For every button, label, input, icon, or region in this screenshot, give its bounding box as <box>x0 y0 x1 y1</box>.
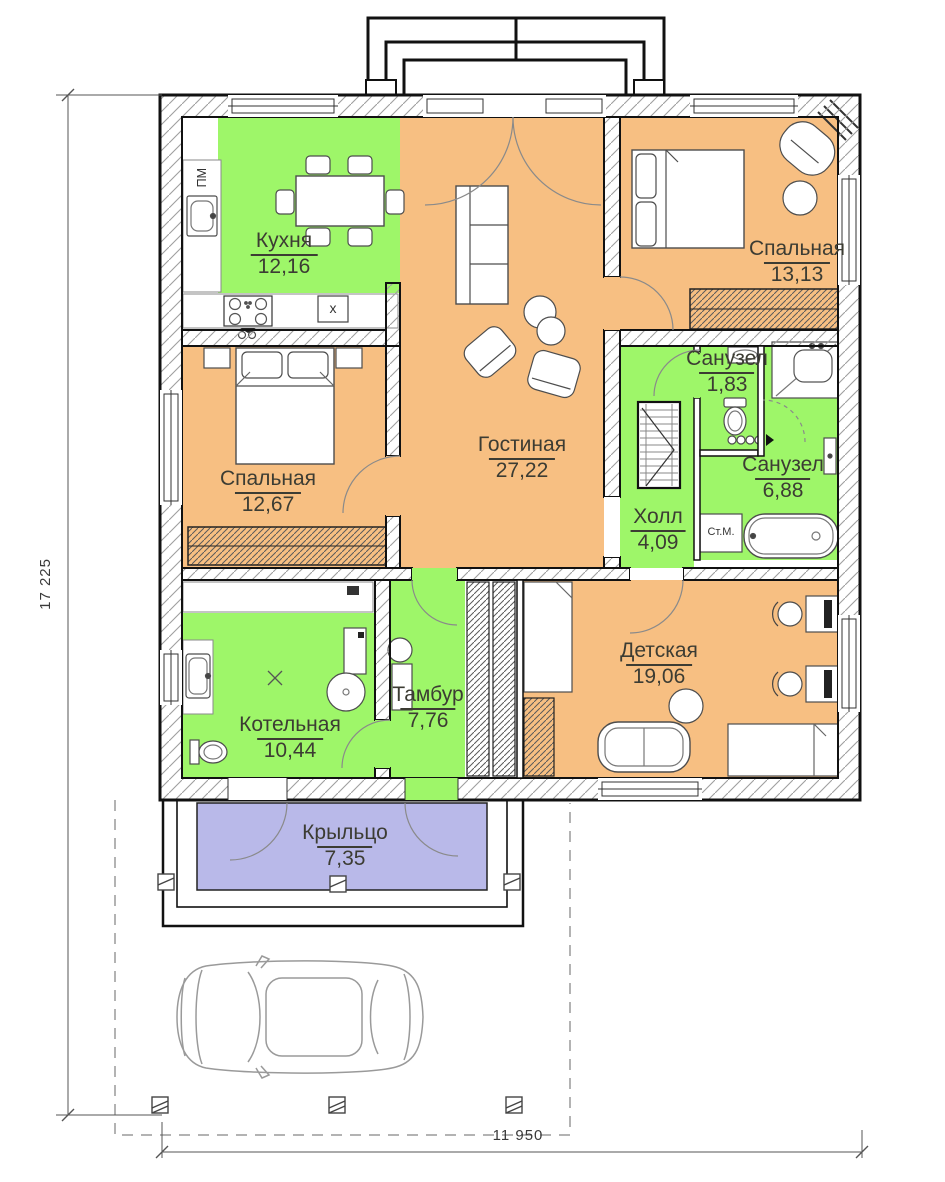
parked-car <box>177 956 423 1078</box>
room-label-vestibule: Тамбур7,76 <box>392 684 463 732</box>
dimension-height: 17 225 <box>38 558 54 610</box>
desk-chair <box>778 602 802 626</box>
washing-machine-marker: Ст.М. <box>698 527 744 539</box>
room-label-bathroom-big: Санузел6,88 <box>742 454 824 502</box>
desk-chair <box>778 672 802 696</box>
room-label-bedroom-left: Спальная12,67 <box>220 468 316 516</box>
floor-plan-page: Кухня12,16 Гостиная27,22 Спальная13,13 С… <box>0 0 945 1182</box>
sofa <box>456 186 508 304</box>
side-table <box>783 181 817 215</box>
room-label-boiler-room: Котельная10,44 <box>239 714 341 762</box>
round-table <box>669 689 703 723</box>
toilet <box>724 398 746 407</box>
room-label-kitchen: Кухня12,16 <box>251 230 318 278</box>
hall-ladder <box>638 402 680 488</box>
room-label-living: Гостиная27,22 <box>478 434 566 482</box>
floor-plan-drawing <box>0 0 945 1182</box>
wardrobe <box>524 698 554 776</box>
room-label-hall: Холл4,09 <box>631 506 686 554</box>
room-label-kids-room: Детская19,06 <box>620 640 698 688</box>
terrace-roof <box>366 18 664 95</box>
desk <box>806 596 838 632</box>
room-label-porch: Крыльцо7,35 <box>302 822 388 870</box>
kid-bed <box>524 582 572 692</box>
room-label-bedroom-right: Спальная13,13 <box>749 238 845 286</box>
dimension-width: 11 950 <box>473 1128 563 1144</box>
water-tank <box>327 673 365 711</box>
coat-closet <box>467 582 489 776</box>
toilet <box>190 740 199 764</box>
water-heater <box>388 638 412 662</box>
dishwasher-marker: ПМ <box>196 168 210 187</box>
kitchen-sink-marker: x <box>330 301 337 316</box>
desk <box>806 666 838 702</box>
coat-closet <box>493 582 515 776</box>
room-label-bathroom-small: Санузел1,83 <box>686 348 768 396</box>
